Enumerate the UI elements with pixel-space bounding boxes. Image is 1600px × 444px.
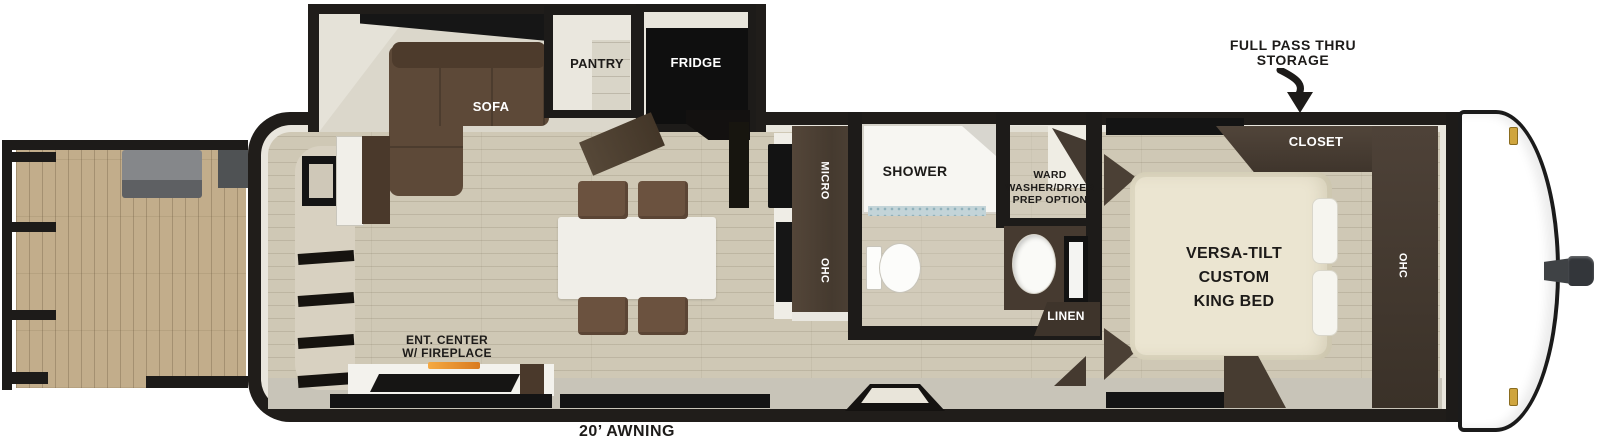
dining-chair: [578, 181, 628, 219]
toilet: [879, 243, 921, 293]
storage-callout-arrow-icon: [1272, 68, 1316, 116]
sofa-back-cushion: [392, 42, 546, 68]
deck-railing-top: [6, 140, 248, 150]
closet-label: CLOSET: [1246, 135, 1386, 148]
window: [560, 394, 770, 408]
storage-callout-line2: STORAGE: [1193, 53, 1393, 67]
king-bed: [1130, 172, 1332, 360]
pantry-label: PANTRY: [553, 57, 641, 70]
deck-railing-post: [2, 372, 48, 384]
deck-railing-post: [10, 310, 56, 320]
dining-chair: [578, 297, 628, 335]
shower-glass-door: [868, 206, 986, 216]
ward-label-line1: WARD: [990, 170, 1110, 181]
marker-light: [1509, 127, 1518, 145]
dining-chair: [638, 297, 688, 335]
bathroom-sink: [1012, 234, 1056, 294]
bathroom-wall: [848, 112, 862, 340]
king-bed-label-line2: CUSTOM: [1138, 270, 1330, 286]
bedroom-window: [1106, 392, 1244, 408]
cooktop: [768, 144, 794, 208]
cabinet-end-panel: [729, 122, 749, 208]
tv: [370, 374, 520, 392]
ward-label-line2: WASHER/DRYER: [990, 183, 1110, 194]
deck-grill-front: [122, 180, 202, 198]
deck-railing-left: [2, 140, 12, 390]
rv-floorplan-diagram: SOFA PANTRY FRIDGE ENT. CENTER W/ FIREPL…: [0, 0, 1600, 444]
fridge: [646, 28, 748, 124]
ent-center-label-line2: W/ FIREPLACE: [387, 347, 507, 359]
rear-door-glass: [309, 164, 333, 198]
pantry-shelves: [592, 40, 630, 110]
sofa-label: SOFA: [431, 100, 551, 113]
storage-callout-line1: FULL PASS THRU: [1193, 38, 1393, 52]
fridge-label: FRIDGE: [646, 56, 746, 69]
ent-center-label-line1: ENT. CENTER: [387, 334, 507, 346]
dining-chair: [638, 181, 688, 219]
king-bed-label-line3: KING BED: [1138, 294, 1330, 310]
micro-label: MICRO: [819, 151, 830, 211]
dining-table: [558, 217, 716, 299]
bedroom-ohc-label: OHC: [1397, 236, 1408, 296]
window: [330, 394, 552, 408]
linen-label: LINEN: [1006, 310, 1126, 322]
ent-center-end-cabinet: [520, 364, 544, 396]
side-cabinet-white: [336, 136, 364, 226]
deck-grill: [122, 150, 202, 182]
shower-label: SHOWER: [855, 164, 975, 178]
marker-light: [1509, 388, 1518, 406]
ward-label-line3: PREP OPTION: [990, 195, 1110, 206]
deck-railing-post: [10, 222, 56, 232]
deck-storage-box: [218, 150, 248, 188]
king-bed-label-line1: VERSA-TILT: [1138, 246, 1330, 262]
deck-railing-post: [10, 152, 56, 162]
fireplace-glow: [428, 362, 480, 369]
awning-label: 20’ AWNING: [527, 424, 727, 440]
side-cabinet-wood: [362, 136, 390, 224]
deck-railing-bottom: [146, 376, 248, 388]
hitch-coupler: [1568, 256, 1594, 286]
bathroom-window: [1069, 242, 1083, 298]
kitchen-ohc-label: OHC: [819, 241, 830, 301]
